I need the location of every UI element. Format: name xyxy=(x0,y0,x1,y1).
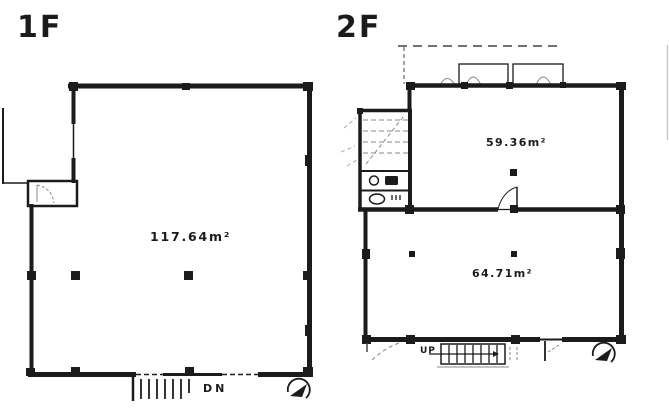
north-arrow-head xyxy=(290,384,307,397)
north-arrow-icon xyxy=(288,379,310,398)
floor-plan-linework xyxy=(0,0,669,411)
entry-annex xyxy=(28,181,77,206)
floor-2f-title: 2F xyxy=(336,13,381,43)
floor-2f-stair-label: UP xyxy=(420,347,436,356)
floor-1f-title: 1F xyxy=(17,13,62,43)
door-arc xyxy=(371,343,399,361)
column xyxy=(406,335,415,344)
floor-1f-area-label: 117.64m² xyxy=(150,231,231,244)
column xyxy=(362,335,371,344)
column xyxy=(69,82,78,91)
sink-icon xyxy=(370,176,379,185)
column xyxy=(511,251,517,257)
column xyxy=(616,205,625,214)
column xyxy=(305,325,312,336)
stair-arrow-head xyxy=(493,351,499,357)
column xyxy=(511,335,520,344)
column xyxy=(560,82,566,88)
north-arrow-icon xyxy=(593,343,615,362)
column xyxy=(405,205,414,214)
floor-2f-lower-area-label: 64.71m² xyxy=(472,268,533,279)
column xyxy=(357,108,363,114)
north-arrow-head xyxy=(595,348,612,361)
floor-1f-stair-label: DN xyxy=(203,383,227,394)
column xyxy=(616,82,626,90)
column xyxy=(184,271,193,280)
column xyxy=(71,271,80,280)
column xyxy=(461,82,468,89)
column xyxy=(182,83,190,90)
column xyxy=(510,205,518,213)
column xyxy=(616,248,625,259)
column xyxy=(303,271,312,280)
door-arc xyxy=(37,185,54,203)
column xyxy=(26,368,35,376)
bath-unit-icon xyxy=(385,176,398,185)
column xyxy=(616,335,626,344)
exterior-dash xyxy=(347,160,357,166)
column xyxy=(406,82,415,90)
stair-travel-line xyxy=(366,116,404,164)
door-dash xyxy=(548,345,559,352)
window-box xyxy=(459,64,508,85)
column xyxy=(303,367,313,376)
column xyxy=(362,249,370,259)
column xyxy=(27,271,36,280)
column xyxy=(303,82,313,91)
column xyxy=(305,155,312,166)
toilet-icon xyxy=(370,194,385,204)
floor-2f-upper-area-label: 59.36m² xyxy=(486,137,547,148)
column xyxy=(71,367,80,376)
column xyxy=(510,169,517,176)
floor-2f-plan xyxy=(341,46,626,367)
column xyxy=(185,367,194,376)
exterior-dash xyxy=(341,146,355,152)
floor-plan-canvas: 1F 2F 117.64m² 59.36m² 64.71m² DN UP xyxy=(0,0,669,411)
column xyxy=(409,251,415,257)
column xyxy=(506,82,513,89)
exterior-dash xyxy=(344,118,356,128)
